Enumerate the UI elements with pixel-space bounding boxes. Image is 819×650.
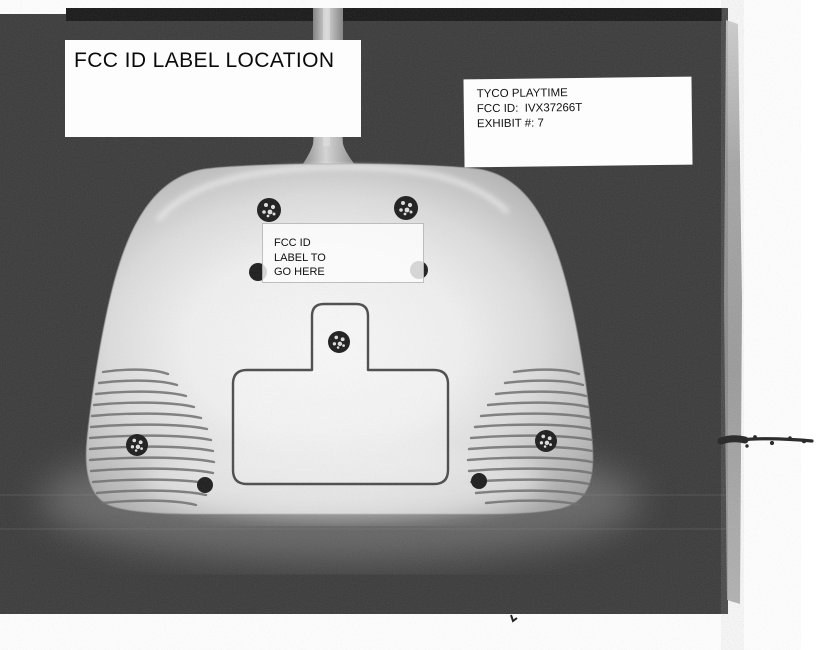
placeholder-line-3: GO HERE: [263, 265, 423, 280]
placeholder-line-2: LABEL TO: [263, 251, 423, 266]
exhibit-info-box: TYCO PLAYTIME FCC ID: IVX37266T EXHIBIT …: [463, 77, 692, 168]
ink-speck: [511, 615, 517, 621]
title-box: FCC ID LABEL LOCATION: [65, 40, 361, 137]
fcc-label-placeholder: FCC ID LABEL TO GO HERE: [262, 223, 424, 283]
scanned-exhibit-page: FCC ID LABEL LOCATION TYCO PLAYTIME FCC …: [0, 0, 819, 650]
scanner-streak-grain: [723, 20, 742, 604]
exhibit-product-name: TYCO PLAYTIME: [463, 77, 691, 103]
placeholder-line-1: FCC ID: [263, 224, 423, 251]
page-title: FCC ID LABEL LOCATION: [65, 40, 361, 73]
exhibit-number: EXHIBIT #: 7: [464, 115, 692, 133]
